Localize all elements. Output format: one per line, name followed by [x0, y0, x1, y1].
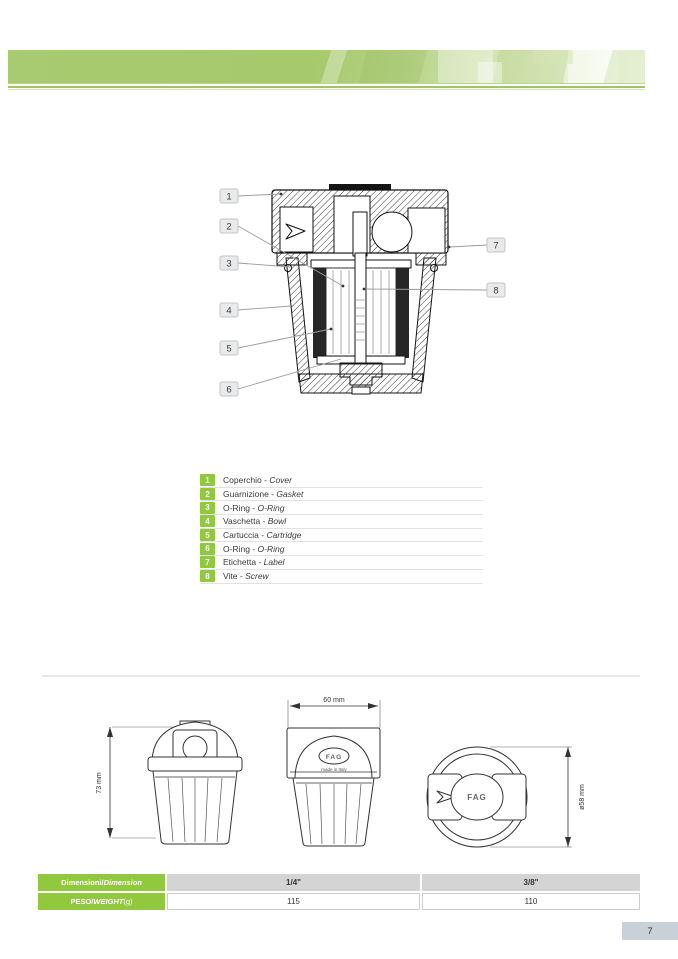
callout-1-label: 1: [226, 192, 231, 203]
hub-foot: [352, 387, 370, 394]
part-number-badge: 5: [200, 529, 215, 541]
part-separator: -: [238, 571, 246, 581]
part-name-en: Cover: [269, 475, 292, 485]
part-separator: -: [256, 557, 264, 567]
filter-section-drawing: [272, 184, 448, 394]
spec-table: Dimensioni / Dimension 1/4" 3/8" PESO / …: [38, 874, 640, 910]
right-port: [408, 208, 445, 253]
part-name-en: Cartridge: [266, 530, 301, 540]
seal-band-right: [396, 268, 409, 358]
part-name-it: Guarnizione: [223, 489, 269, 499]
table-row: 4 Vaschetta - Bowl: [200, 515, 483, 529]
seal-band-left: [313, 268, 326, 358]
table-row: 2 Guarnizione - Gasket: [200, 488, 483, 502]
height-dimension-label: 73 mm: [96, 772, 103, 794]
page-number: 7: [647, 926, 652, 937]
table-row: 6 O-Ring - O-Ring: [200, 542, 483, 556]
parts-table: 1 Coperchio - Cover 2 Guarnizione - Gask…: [200, 474, 483, 584]
catalog-page: { "colors": { "brand_green": "#92c83e", …: [0, 0, 678, 959]
callout-2: 2: [220, 219, 238, 233]
callout-7-label: 7: [493, 241, 498, 252]
part-name-en: O-Ring: [258, 503, 285, 513]
spec-weight-label: PESO / WEIGHT (g): [38, 893, 165, 910]
page-number-badge: 7: [622, 922, 678, 940]
part-separator: -: [250, 503, 258, 513]
part-name-it: Vaschetta: [223, 516, 260, 526]
callout-6-label: 6: [226, 385, 231, 396]
callout-3-label: 3: [226, 259, 231, 270]
spec-weight-quarter: 115: [167, 893, 420, 910]
port-sphere: [372, 212, 412, 252]
callout-5: 5: [220, 341, 238, 355]
part-number-badge: 1: [200, 474, 215, 486]
part-name-en: Bowl: [268, 516, 286, 526]
table-row: 1 Coperchio - Cover: [200, 474, 483, 488]
diameter-dimension-label: ø58 mm: [579, 784, 586, 810]
top-view-drawing: FAG ø58 mm: [427, 747, 586, 847]
header-rule-light: [8, 89, 645, 90]
callout-6: 6: [220, 382, 238, 396]
callout-4: 4: [220, 303, 238, 317]
brand-logo-text: FAG: [326, 754, 342, 761]
callout-3: 3: [220, 256, 238, 270]
spec-weight-three-eighths: 110: [422, 893, 640, 910]
table-row: 8 Vite - Screw: [200, 570, 483, 584]
callout-8: 8: [487, 283, 505, 297]
callout-1: 1: [220, 189, 238, 203]
callout-7: 7: [487, 238, 505, 252]
part-number-badge: 8: [200, 570, 215, 582]
part-name-it: O-Ring: [223, 544, 250, 554]
callout-8-label: 8: [493, 286, 498, 297]
table-row: 3 O-Ring - O-Ring: [200, 501, 483, 515]
callout-5-label: 5: [226, 344, 231, 355]
front-view-drawing: 60 mm FAG made in Italy: [287, 697, 380, 846]
part-number-badge: 7: [200, 556, 215, 568]
cross-section-figure: 1 2 3 4 5 6 7 8: [215, 183, 510, 405]
callout-4-label: 4: [226, 306, 231, 317]
part-name-it: Etichetta: [223, 557, 256, 567]
band-facet: [321, 50, 348, 83]
part-number-badge: 3: [200, 502, 215, 514]
part-separator: -: [250, 544, 258, 554]
part-name-en: Label: [264, 557, 285, 567]
table-row: 5 Cartuccia - Cartridge: [200, 529, 483, 543]
table-row: 7 Etichetta - Label: [200, 556, 483, 570]
section-divider: [42, 675, 640, 677]
part-name-en: O-Ring: [258, 544, 285, 554]
part-name-en: Gasket: [276, 489, 303, 499]
callout-2-label: 2: [226, 222, 231, 233]
header-green-band: [8, 50, 645, 84]
part-number-badge: 6: [200, 543, 215, 555]
spec-size-three-eighths: 3/8": [422, 874, 640, 891]
width-dimension-label: 60 mm: [323, 697, 345, 704]
part-name-it: Vite: [223, 571, 238, 581]
brand-logo-text: FAG: [467, 793, 486, 802]
part-name-it: Cartuccia: [223, 530, 259, 540]
part-name-it: Coperchio: [223, 475, 262, 485]
band-facet: [478, 62, 502, 83]
part-name-it: O-Ring: [223, 503, 250, 513]
part-name-en: Screw: [245, 571, 269, 581]
spec-size-quarter: 1/4": [167, 874, 420, 891]
header-rule: [8, 86, 645, 88]
part-number-badge: 2: [200, 488, 215, 500]
bowl-wall-left: [286, 258, 310, 382]
spec-header-dimension: Dimensioni / Dimension: [38, 874, 165, 891]
made-in-italy-text: made in Italy: [321, 767, 347, 772]
side-view-drawing: 73 mm: [96, 721, 242, 844]
band-facet: [533, 50, 573, 64]
dimension-drawings: 73 mm 60 mm FAG made in Italy: [80, 690, 600, 865]
part-number-badge: 4: [200, 515, 215, 527]
screw-upper: [353, 212, 367, 256]
part-separator: -: [260, 516, 268, 526]
bowl-wall-right: [412, 258, 436, 382]
top-cap: [329, 184, 391, 190]
band-facet: [359, 50, 427, 83]
